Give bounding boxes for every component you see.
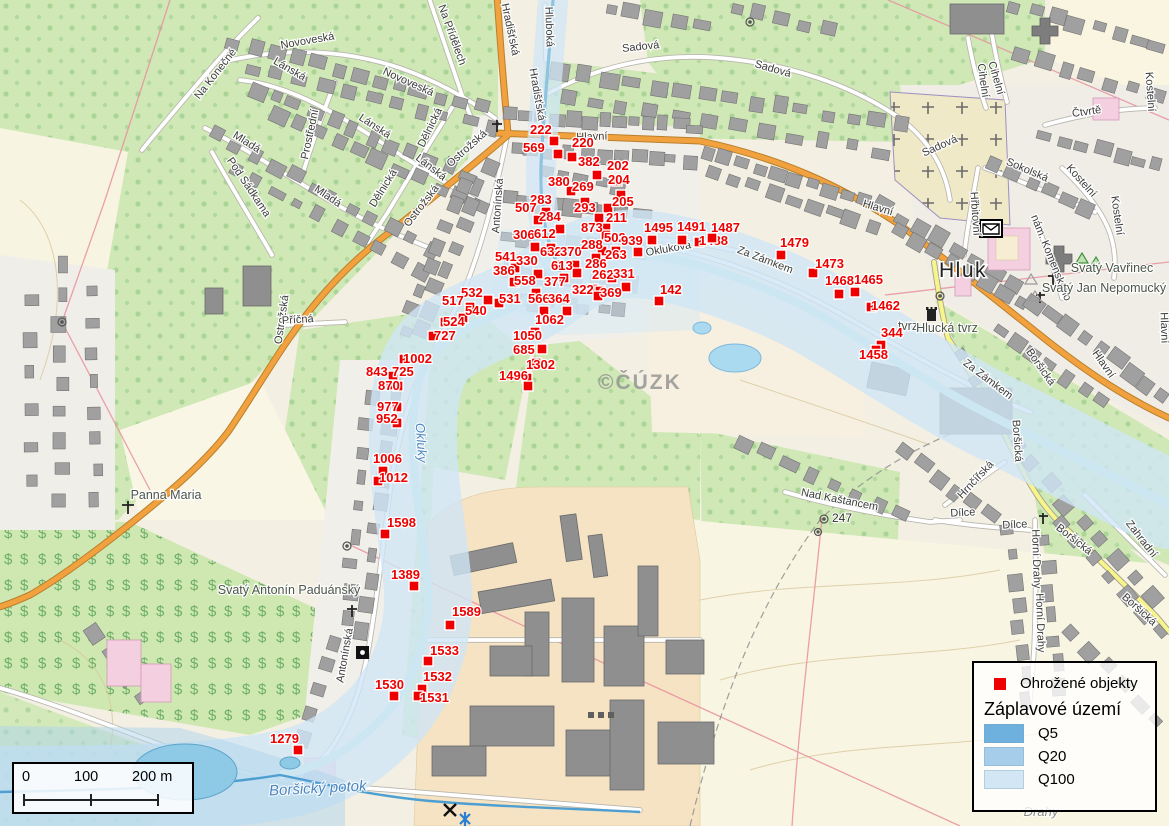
legend-zone-row: Q20 xyxy=(984,747,1145,766)
building xyxy=(1008,549,1017,560)
hazard-marker[interactable] xyxy=(677,235,687,245)
hazard-marker-label: 211 xyxy=(606,210,627,225)
street-label: Horní Drahy xyxy=(1029,529,1043,589)
hazard-marker-label: 386 xyxy=(493,263,515,278)
building-large xyxy=(490,646,532,676)
building-large xyxy=(638,566,658,636)
flood-zone-swatch xyxy=(984,724,1024,743)
hazard-marker-label: 1533 xyxy=(430,643,459,658)
building xyxy=(365,573,379,591)
building xyxy=(612,116,627,128)
hazard-marker-label: 1050 xyxy=(513,328,542,343)
street-label: Dílce xyxy=(1002,518,1028,531)
building xyxy=(649,151,665,165)
hazard-marker-label: 263 xyxy=(605,247,627,262)
building xyxy=(90,374,97,387)
map-viewport[interactable]: $ $ xyxy=(0,0,1169,826)
hazard-marker-label: 1598 xyxy=(387,515,416,530)
building xyxy=(643,9,663,28)
building-pink xyxy=(107,640,141,686)
street-label: Horní Drahy xyxy=(1033,593,1047,653)
hazard-marker-label: 204 xyxy=(608,172,630,187)
hazard-marker-label: 952 xyxy=(376,411,398,426)
building xyxy=(86,318,100,328)
poi-label: Panna Maria xyxy=(131,488,202,502)
building-large xyxy=(658,722,714,764)
building xyxy=(621,2,641,19)
building xyxy=(87,286,97,296)
building xyxy=(25,404,38,416)
building-large xyxy=(243,266,271,306)
hazard-marker-label: 1532 xyxy=(423,669,452,684)
building xyxy=(582,116,598,130)
hazard-marker-label: 220 xyxy=(572,135,594,150)
hazard-marker-label: 725 xyxy=(392,364,414,379)
street-label: Příčná xyxy=(282,313,315,327)
building xyxy=(1041,560,1057,574)
hazard-point-icon xyxy=(994,678,1006,690)
building xyxy=(1046,636,1059,647)
hazard-marker-label: 202 xyxy=(607,158,629,173)
flood-zone-label: Q100 xyxy=(1038,771,1075,788)
hazard-marker-label: 205 xyxy=(612,194,634,209)
building xyxy=(342,558,357,569)
hazard-marker[interactable] xyxy=(654,296,664,306)
chimney xyxy=(588,712,594,718)
hazard-marker-label: 1062 xyxy=(535,312,564,327)
hazard-marker-label: 1491 xyxy=(677,219,706,234)
hazard-marker-label: 569 xyxy=(523,140,545,155)
building xyxy=(53,346,65,362)
hazard-marker-label: 1012 xyxy=(379,470,408,485)
building-large xyxy=(470,706,554,746)
hazard-marker-label: 1462 xyxy=(871,298,900,313)
building-large xyxy=(205,288,223,314)
building xyxy=(867,111,887,127)
street-label: Hlavní xyxy=(1157,312,1169,344)
building xyxy=(642,116,654,130)
building xyxy=(1046,606,1056,622)
poi-label: Hluk xyxy=(939,259,987,282)
building xyxy=(600,112,611,126)
poi-label: Svatý Jan Nepomucký xyxy=(1042,281,1167,295)
building-large xyxy=(610,700,644,790)
building xyxy=(1010,620,1024,635)
hazard-marker-label: 142 xyxy=(660,282,682,297)
building xyxy=(846,139,858,151)
building xyxy=(89,432,100,445)
scale-line xyxy=(14,764,192,812)
hazard-marker-label: 558 xyxy=(514,273,536,288)
building xyxy=(89,492,99,507)
building xyxy=(53,406,65,416)
hazard-marker[interactable] xyxy=(445,620,455,630)
hazard-marker-label: 322 xyxy=(572,282,594,297)
hazard-marker-label: 507 xyxy=(515,200,537,215)
hazard-marker-label: 612 xyxy=(534,226,556,241)
hazard-marker[interactable] xyxy=(537,344,547,354)
building xyxy=(650,81,668,98)
hazard-marker-label: 531 xyxy=(499,291,521,306)
hazard-marker-label: 1495 xyxy=(644,220,673,235)
building xyxy=(24,443,38,452)
hazard-marker-label: 288 xyxy=(581,237,603,252)
building-large xyxy=(432,746,486,776)
building xyxy=(606,4,617,14)
map-legend: Ohrožené objekty Záplavové území Q5Q20Q1… xyxy=(972,661,1157,812)
poi-label: Svatý Antonín Paduánský xyxy=(218,583,361,597)
building xyxy=(757,123,776,140)
building xyxy=(749,96,765,113)
building xyxy=(657,115,667,130)
cuzk-watermark: ©ČÚZK xyxy=(598,370,682,394)
hazard-marker-label: 1458 xyxy=(859,347,888,362)
hazard-marker[interactable] xyxy=(834,289,844,299)
hazard-marker-label: 369 xyxy=(600,285,622,300)
hazard-marker-label: 1006 xyxy=(373,451,402,466)
building xyxy=(23,333,37,348)
building xyxy=(1016,644,1030,660)
hazard-marker-label: 1279 xyxy=(270,731,299,746)
hazard-marker-label: 873 xyxy=(581,220,603,235)
hazard-marker-label: 331 xyxy=(613,266,635,281)
chimney xyxy=(598,712,604,718)
scale-bar: 0 100 200 m xyxy=(12,762,194,814)
flood-zone-label: Q20 xyxy=(1038,748,1066,765)
building-large xyxy=(562,598,594,682)
hazard-marker-label: 1479 xyxy=(780,235,809,250)
building xyxy=(820,20,837,36)
hazard-marker[interactable] xyxy=(555,224,565,234)
building xyxy=(53,433,65,449)
building-large xyxy=(950,4,1004,34)
building xyxy=(728,117,747,132)
building xyxy=(59,288,67,302)
flood-zone-swatch xyxy=(984,747,1024,766)
hazard-marker-label: 939 xyxy=(621,233,643,248)
building xyxy=(671,14,688,30)
building-large xyxy=(666,640,704,674)
hazard-marker-label: 284 xyxy=(539,209,561,224)
building xyxy=(434,93,447,106)
hazard-marker-label: 541 xyxy=(495,249,517,264)
building xyxy=(641,103,658,118)
building xyxy=(731,3,744,15)
flood-zone-swatch xyxy=(984,770,1024,789)
hazard-marker-label: 685 xyxy=(513,342,535,357)
building xyxy=(94,464,103,476)
building xyxy=(340,84,357,101)
hazard-marker-label: 380 xyxy=(548,174,570,189)
building xyxy=(87,407,100,420)
hazard-marker-label: 1473 xyxy=(815,256,844,271)
building xyxy=(57,377,69,390)
building xyxy=(503,107,517,120)
building xyxy=(721,91,738,104)
building xyxy=(25,365,34,378)
hazard-marker[interactable] xyxy=(621,282,631,292)
building xyxy=(613,100,627,114)
hazard-marker-label: 1487 xyxy=(711,220,740,235)
hazard-marker-label: 524 xyxy=(443,314,465,329)
building xyxy=(1007,574,1024,593)
hazard-marker-label: 843 xyxy=(366,364,388,379)
hazard-marker[interactable] xyxy=(567,152,577,162)
building xyxy=(566,111,582,128)
building xyxy=(358,596,375,613)
hazard-marker-label: 293 xyxy=(574,200,596,215)
building xyxy=(686,125,703,134)
building xyxy=(792,103,807,114)
poi-label: Hlucká tvrz xyxy=(916,321,978,335)
legend-zone-row: Q100 xyxy=(984,770,1145,789)
chimney xyxy=(608,712,614,718)
hazard-marker-label: 1496 xyxy=(499,368,528,383)
river-label: Okluky xyxy=(413,422,431,464)
legend-zone-row: Q5 xyxy=(984,724,1145,743)
hazard-marker-label: 1465 xyxy=(854,272,883,287)
hazard-marker-label: 540 xyxy=(465,303,487,318)
hazard-marker[interactable] xyxy=(572,268,582,278)
hazard-marker-label: 566 xyxy=(528,291,550,306)
hazard-marker[interactable] xyxy=(380,529,390,539)
hazard-marker[interactable] xyxy=(389,691,399,701)
hazard-marker-label: 1302 xyxy=(526,357,555,372)
hazard-marker-label: 1389 xyxy=(391,567,420,582)
building xyxy=(632,149,648,162)
hazard-marker[interactable] xyxy=(647,235,657,245)
tower-icon xyxy=(926,307,937,321)
hazard-marker-label: 377 xyxy=(544,274,566,289)
hazard-marker-label: 306 xyxy=(513,227,535,242)
building xyxy=(52,494,65,507)
hazard-marker[interactable] xyxy=(409,581,419,591)
hazard-marker-label: 269 xyxy=(572,179,594,194)
hazard-marker-label: 1530 xyxy=(375,677,404,692)
hazard-marker-label: 382 xyxy=(578,154,600,169)
building xyxy=(27,475,38,486)
hazard-marker-label: 632 xyxy=(540,244,562,259)
building xyxy=(816,131,829,148)
building xyxy=(85,348,97,360)
building xyxy=(629,117,640,126)
hazard-marker[interactable] xyxy=(530,242,540,252)
hazard-marker-label: 364 xyxy=(548,291,570,306)
hazard-marker[interactable] xyxy=(549,136,559,146)
building xyxy=(351,529,361,545)
building xyxy=(55,463,70,475)
legend-hazard-row: Ohrožené objekty xyxy=(984,675,1145,692)
building xyxy=(367,548,377,563)
poi-label: 247 xyxy=(832,511,852,525)
building xyxy=(894,115,910,132)
building xyxy=(672,83,692,99)
building xyxy=(664,154,675,162)
building xyxy=(357,447,369,459)
building xyxy=(699,86,717,101)
building xyxy=(560,89,577,106)
hazard-marker-label: 532 xyxy=(461,285,483,300)
building xyxy=(683,156,697,171)
hazard-marker[interactable] xyxy=(553,149,563,159)
flood-zone-label: Q5 xyxy=(1038,725,1058,742)
hazard-marker-label: 222 xyxy=(530,122,552,137)
legend-hazard-label: Ohrožené objekty xyxy=(1020,675,1138,692)
building xyxy=(599,72,620,90)
hazard-marker-label: 517 xyxy=(442,293,464,308)
legend-flood-zones: Q5Q20Q100 xyxy=(984,724,1145,789)
hazard-marker-label: 262 xyxy=(592,267,614,282)
hazard-marker[interactable] xyxy=(776,250,786,260)
hazard-marker-label: 1589 xyxy=(452,604,481,619)
street-label: Dílce xyxy=(950,506,976,519)
courtyard xyxy=(996,236,1018,260)
hazard-marker[interactable] xyxy=(293,745,303,755)
transformer-icon xyxy=(356,646,369,659)
building xyxy=(58,256,67,273)
building xyxy=(822,111,835,123)
building-pink xyxy=(141,664,171,702)
building xyxy=(353,501,363,511)
hazard-marker-label: 870 xyxy=(378,378,400,393)
building xyxy=(1013,598,1028,614)
hazard-marker-label: 344 xyxy=(881,325,903,340)
hazard-marker-label: 1468 xyxy=(825,273,854,288)
hazard-marker-label: 727 xyxy=(434,328,456,343)
poi-label: Svatý Vavřinec xyxy=(1071,261,1153,275)
street-label: Hluboká xyxy=(542,7,555,49)
building xyxy=(773,95,789,114)
hazard-marker[interactable] xyxy=(850,287,860,297)
building xyxy=(357,470,366,485)
hazard-marker[interactable] xyxy=(633,247,643,257)
hazard-marker-label: 613 xyxy=(551,258,573,273)
legend-flood-title: Záplavové území xyxy=(984,699,1145,720)
hazard-marker-label: 370 xyxy=(560,244,582,259)
building xyxy=(847,114,860,125)
hazard-marker-label: 1531 xyxy=(420,690,449,705)
building xyxy=(575,64,591,82)
hazard-marker-label: 330 xyxy=(516,253,538,268)
building xyxy=(25,295,39,306)
